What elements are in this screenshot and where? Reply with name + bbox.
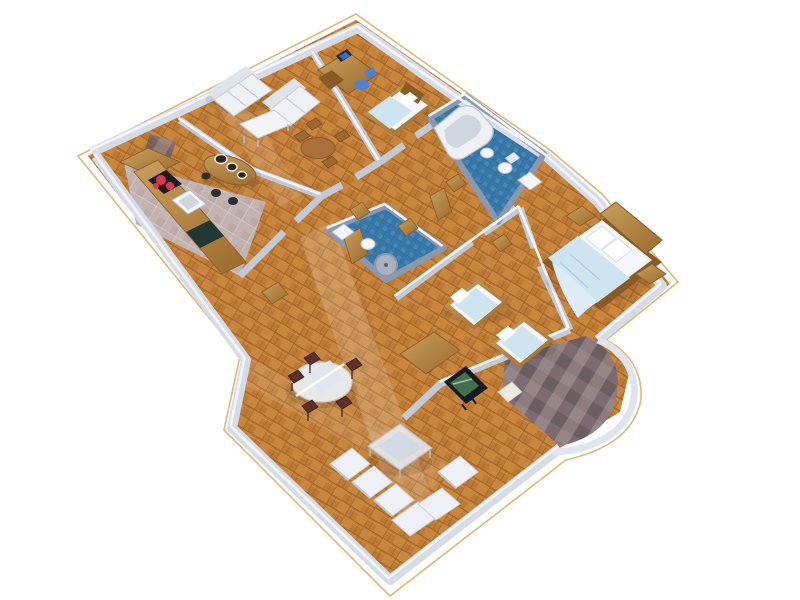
- burner: [153, 183, 159, 189]
- bar-stool: [202, 173, 211, 180]
- bowl: [238, 172, 247, 179]
- burner: [166, 182, 174, 190]
- bar-stool: [211, 189, 221, 197]
- toilet: [498, 163, 512, 174]
- floorplan-render: [0, 0, 800, 600]
- office-chair: [355, 80, 370, 91]
- shower-drain: [384, 263, 388, 267]
- floorplan-svg: [0, 0, 800, 600]
- bidet: [481, 148, 494, 158]
- bar-stool: [228, 197, 238, 205]
- bowl: [227, 163, 237, 171]
- dining-table-round-wood: [301, 138, 335, 159]
- toilet: [361, 239, 375, 250]
- bowl: [215, 155, 227, 164]
